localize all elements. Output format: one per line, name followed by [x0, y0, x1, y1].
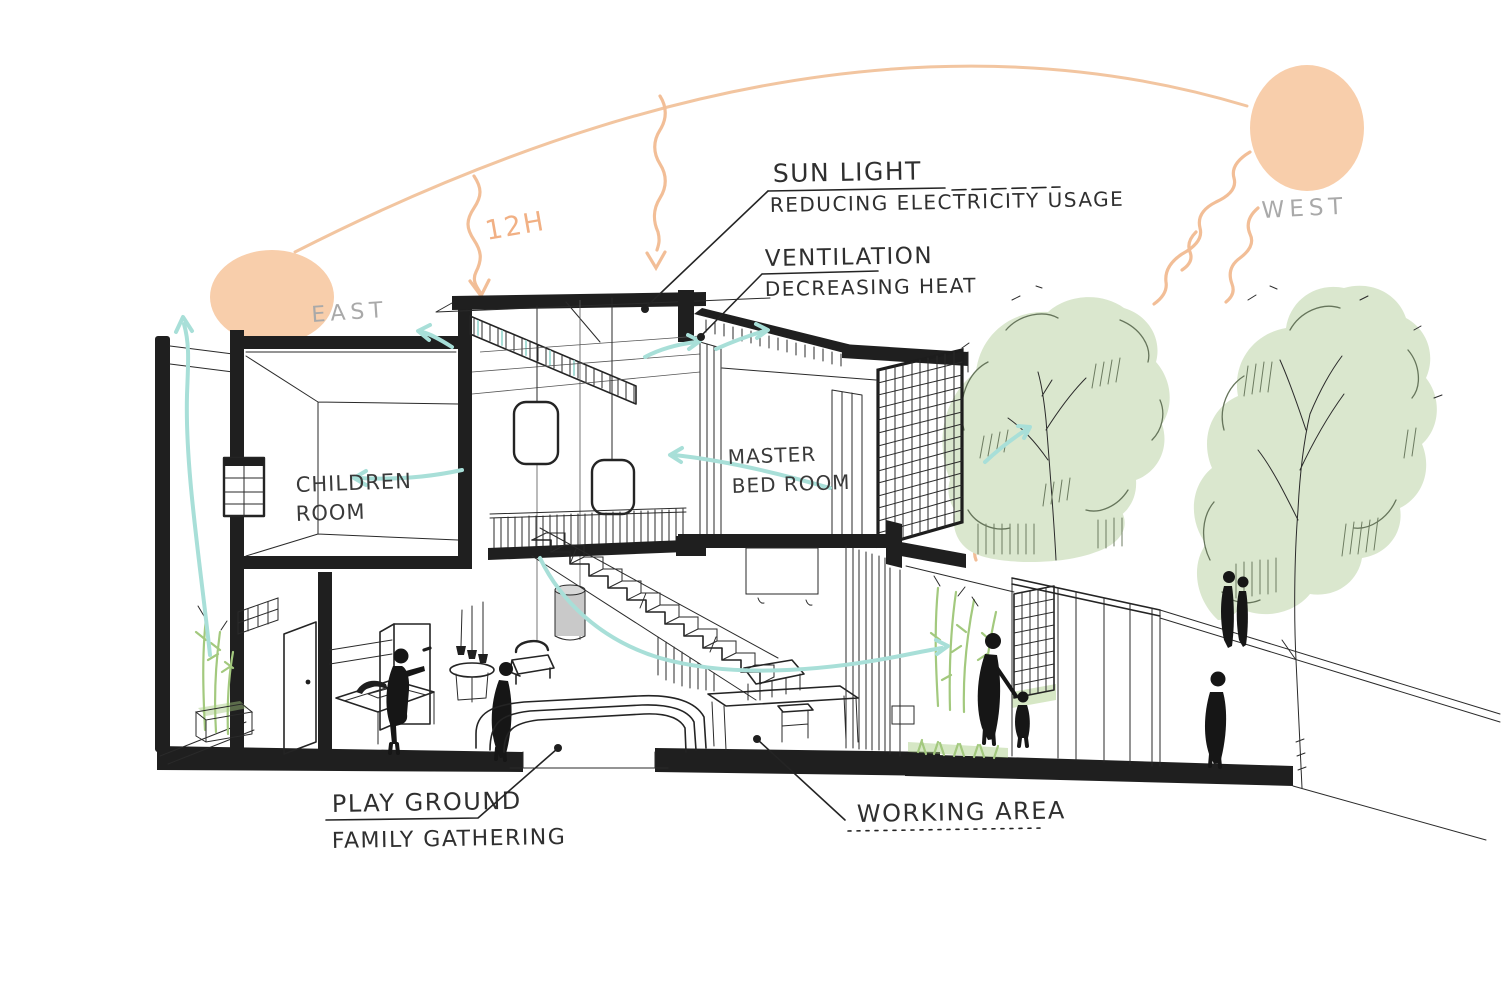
- master-bedroom-label-2: BED ROOM: [731, 470, 851, 498]
- play-ground-subtitle: FAMILY GATHERING: [332, 825, 567, 854]
- children-room-label-2: ROOM: [295, 500, 366, 526]
- ventilation-subtitle: DECREASING HEAT: [765, 273, 978, 301]
- west-sun: [1250, 65, 1364, 191]
- sun-light-subtitle: REDUCING ELECTRICITY USAGE: [770, 187, 1125, 217]
- east-sun: [210, 250, 334, 344]
- master-bedroom-label-1: MASTER: [727, 442, 816, 469]
- tree-right: [1194, 286, 1442, 788]
- children-room-label-1: CHILDREN: [295, 469, 412, 497]
- sketch-canvas: EAST WEST 12H: [0, 0, 1504, 1000]
- tree-left: [942, 286, 1169, 562]
- sun-light-title: SUN LIGHT: [773, 156, 923, 188]
- courtyard: [906, 566, 1160, 766]
- east-label: EAST: [311, 298, 389, 328]
- working-area: [708, 520, 914, 756]
- west-label: WEST: [1261, 194, 1348, 224]
- ventilation-title: VENTILATION: [765, 243, 934, 272]
- sun-path-arc: [295, 66, 1247, 252]
- sun-hours-label: 12H: [483, 206, 548, 247]
- house-structure: [155, 290, 770, 752]
- play-ground-title: PLAY GROUND: [332, 787, 522, 818]
- architecture-sketch: EAST WEST 12H: [0, 0, 1504, 1000]
- annotation-ventilation: VENTILATION DECREASING HEAT: [697, 243, 977, 341]
- working-area-title: WORKING AREA: [857, 796, 1066, 828]
